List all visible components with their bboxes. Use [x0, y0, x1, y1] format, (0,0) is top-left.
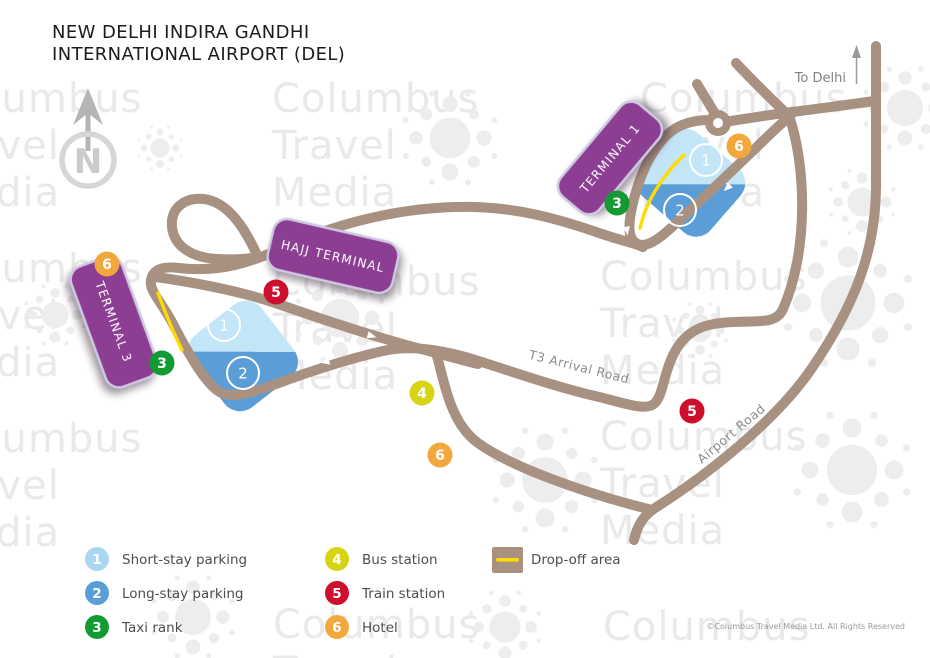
marker-number: 1: [219, 317, 229, 335]
roundabout: [705, 110, 731, 136]
watermark: Media: [0, 170, 60, 216]
marker-number: 3: [612, 196, 622, 212]
watermark: Travel: [271, 123, 397, 169]
marker-number: 4: [417, 386, 427, 402]
teardrop-loop-road: [172, 199, 258, 260]
compass-n-label: N: [74, 142, 102, 182]
bus-station-marker: 4: [410, 381, 435, 406]
legend-number: 3: [92, 620, 101, 636]
watermark: Media: [600, 508, 725, 554]
marker-number: 1: [701, 152, 711, 170]
watermark: Media: [0, 510, 60, 556]
east-train-marker: 5: [680, 399, 705, 424]
marker-number: 6: [435, 448, 445, 464]
legend-label: Long-stay parking: [122, 586, 244, 602]
marker-number: 5: [687, 404, 697, 420]
watermark: Columbus: [0, 416, 142, 462]
legend-number: 1: [92, 552, 101, 568]
watermark: Columbus: [600, 254, 807, 300]
legend-label: Train station: [361, 586, 445, 602]
watermark: Travel: [272, 649, 398, 658]
legend-number: 5: [332, 586, 341, 602]
legend-item-long-stay: 2 Long-stay parking: [85, 581, 244, 605]
legend-label: Hotel: [362, 620, 398, 636]
t3-taxi-marker: 3: [150, 351, 175, 376]
to-delhi-indicator: To Delhi: [794, 45, 861, 86]
watermark: Columbus: [0, 76, 142, 122]
copyright-notice: ©Columbus Travel Media Ltd. All Rights R…: [706, 622, 905, 631]
t3-hotel-marker: 6: [95, 252, 120, 277]
to-delhi-label: To Delhi: [794, 71, 846, 86]
marker-number: 5: [271, 285, 281, 301]
legend-item-bus: 4 Bus station: [325, 547, 438, 571]
t1-hotel-marker: 6: [727, 134, 752, 159]
legend-item-train: 5 Train station: [325, 581, 445, 605]
page-title: NEW DELHI INDIRA GANDHI INTERNATIONAL AI…: [52, 22, 345, 65]
watermark: Media: [272, 170, 397, 216]
legend-number: 4: [332, 552, 341, 568]
legend-label: Drop-off area: [531, 552, 621, 568]
watermark: Travel: [0, 123, 60, 169]
title-line-1: NEW DELHI INDIRA GANDHI: [52, 22, 310, 43]
marker-number: 6: [102, 257, 112, 273]
legend-item-short-stay: 1 Short-stay parking: [85, 547, 247, 571]
marker-number: 6: [734, 139, 744, 155]
watermark: Media: [0, 340, 60, 386]
watermark: Travel: [0, 463, 60, 509]
marker-number: 3: [157, 356, 167, 372]
airport-map-page: ColumbusTravelMedia ColumbusTravelMedia …: [0, 0, 930, 658]
legend-label: Bus station: [362, 552, 438, 568]
t3-dropoff-line: [158, 293, 182, 350]
legend-number: 2: [92, 586, 101, 602]
airport-map: ColumbusTravelMedia ColumbusTravelMedia …: [0, 0, 930, 658]
legend-number: 6: [332, 620, 341, 636]
mid-hotel-marker: 6: [428, 443, 453, 468]
t1-taxi-marker: 3: [605, 191, 630, 216]
marker-number: 2: [238, 365, 248, 383]
title-line-2: INTERNATIONAL AIRPORT (DEL): [52, 44, 345, 65]
legend-label: Taxi rank: [121, 620, 183, 636]
north-arrow-icon: [852, 45, 861, 58]
hajj-train-marker: 5: [264, 280, 289, 305]
marker-number: 2: [675, 202, 685, 220]
legend-label: Short-stay parking: [122, 552, 247, 568]
